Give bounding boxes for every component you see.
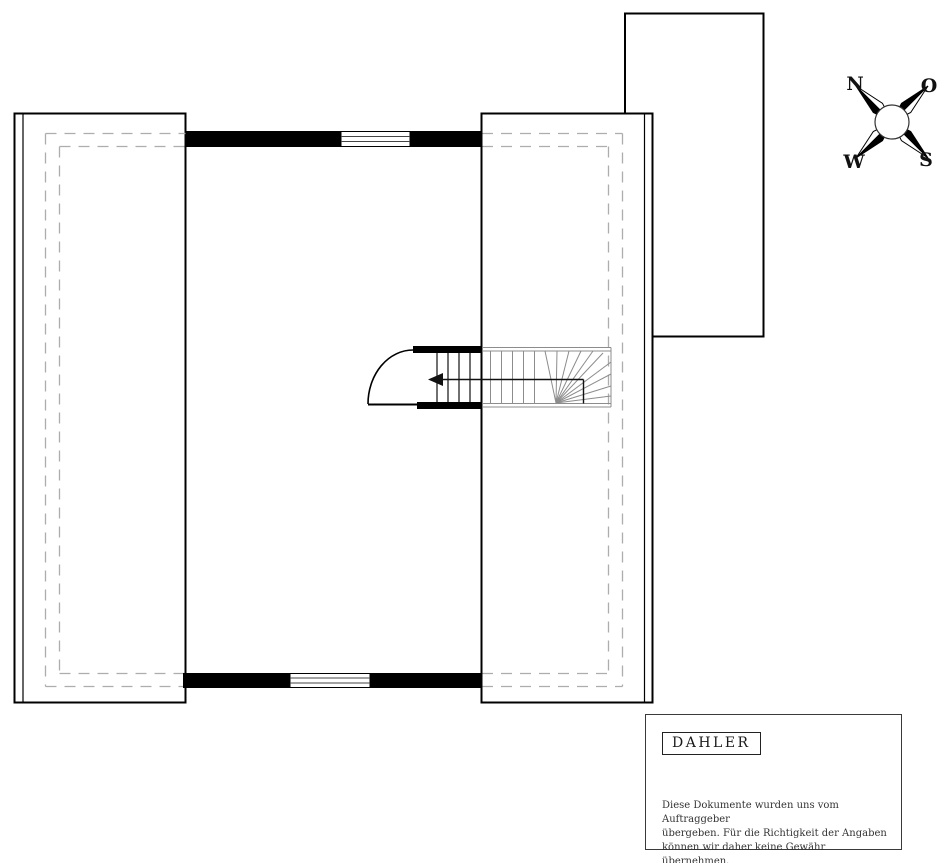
disclaimer-line: übergeben. Für die Richtigkeit der Angab… xyxy=(662,827,894,841)
floor-plan-page: N O W S DAHLER Diese Dokumente wurden un… xyxy=(0,0,952,863)
compass-letter-north: N xyxy=(846,73,863,95)
compass-letter-east: O xyxy=(921,75,938,97)
annex-outline xyxy=(625,14,764,337)
stair-lower-treads xyxy=(491,351,535,404)
left-roof-area xyxy=(15,114,186,703)
right-roof-height-lines xyxy=(482,134,623,687)
disclaimer-text: Diese Dokumente wurden uns vom Auftragge… xyxy=(662,799,894,863)
compass-letter-south: S xyxy=(919,149,933,171)
disclaimer-line: Diese Dokumente wurden uns vom Auftragge… xyxy=(662,799,894,827)
legend-box: DAHLER Diese Dokumente wurden uns vom Au… xyxy=(645,714,902,850)
south-window xyxy=(290,674,370,688)
compass-hub xyxy=(875,105,909,139)
disclaimer-line: können wir daher keine Gewähr übernehmen… xyxy=(662,841,894,863)
door-swing xyxy=(368,350,417,405)
stair-winder-treads xyxy=(545,351,611,403)
north-wall xyxy=(186,131,481,147)
right-roof-area xyxy=(482,114,653,703)
staircase xyxy=(368,346,611,409)
brand-logo: DAHLER xyxy=(662,732,761,755)
compass-letter-west: W xyxy=(842,151,865,173)
stairwell-wall-bottom xyxy=(417,402,481,409)
compass-rose: N O W S xyxy=(842,73,937,173)
north-window xyxy=(341,132,410,147)
left-roof-height-lines xyxy=(46,134,186,687)
south-wall xyxy=(183,673,481,688)
stairwell-wall-top xyxy=(413,346,481,353)
arrow-head xyxy=(428,373,443,386)
